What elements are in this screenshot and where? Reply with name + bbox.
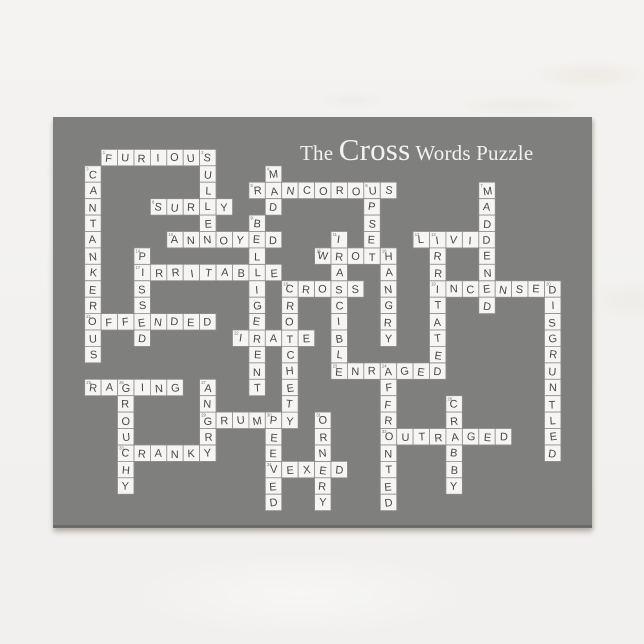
svg-text:L: L: [417, 234, 424, 247]
svg-text:D: D: [482, 301, 492, 314]
svg-text:R: R: [204, 432, 213, 444]
svg-text:D: D: [483, 219, 492, 232]
svg-text:G: G: [548, 333, 558, 346]
svg-text:E: E: [483, 432, 491, 444]
svg-text:D: D: [335, 464, 344, 477]
svg-text:E: E: [303, 333, 311, 345]
svg-text:M: M: [252, 415, 263, 428]
svg-text:D: D: [203, 316, 211, 328]
svg-text:D: D: [269, 497, 278, 510]
svg-text:B: B: [450, 465, 458, 477]
svg-text:R: R: [253, 333, 262, 346]
svg-text:E: E: [204, 218, 212, 230]
svg-text:S: S: [89, 349, 97, 362]
svg-text:O: O: [385, 431, 395, 443]
svg-text:G: G: [170, 382, 180, 395]
svg-text:R: R: [384, 415, 393, 428]
svg-text:E: E: [269, 448, 277, 460]
svg-text:F: F: [121, 316, 129, 329]
svg-text:O: O: [285, 316, 295, 328]
svg-text:O: O: [352, 186, 362, 199]
svg-text:C: C: [303, 185, 312, 198]
svg-text:T: T: [435, 300, 442, 312]
svg-text:U: U: [89, 333, 98, 345]
svg-text:C: C: [121, 447, 131, 460]
svg-text:Y: Y: [121, 481, 130, 493]
svg-text:N: N: [153, 316, 162, 329]
svg-text:N: N: [203, 398, 212, 410]
svg-text:R: R: [220, 415, 229, 427]
svg-text:I: I: [141, 267, 144, 279]
svg-text:D: D: [548, 284, 556, 296]
svg-text:R: R: [171, 267, 180, 280]
svg-text:E: E: [549, 431, 558, 444]
svg-text:N: N: [187, 235, 196, 247]
svg-text:R: R: [137, 448, 146, 461]
svg-text:T: T: [90, 218, 97, 230]
svg-text:C: C: [335, 300, 344, 312]
svg-text:N: N: [351, 366, 359, 378]
svg-text:C: C: [88, 169, 97, 182]
svg-text:R: R: [286, 300, 295, 313]
svg-text:R: R: [433, 250, 442, 263]
svg-text:S: S: [351, 284, 359, 296]
svg-text:R: R: [450, 416, 459, 429]
svg-text:U: U: [186, 153, 195, 166]
svg-text:C: C: [285, 283, 295, 296]
svg-text:R: R: [335, 251, 344, 264]
svg-text:T: T: [287, 334, 294, 346]
svg-text:L: L: [255, 267, 261, 279]
svg-text:R: R: [319, 432, 328, 445]
svg-text:P: P: [269, 415, 278, 428]
svg-text:U: U: [122, 431, 131, 444]
svg-text:E: E: [270, 268, 278, 280]
svg-text:R: R: [137, 153, 145, 165]
svg-text:O: O: [319, 186, 328, 198]
svg-text:S: S: [138, 300, 146, 313]
svg-text:O: O: [318, 414, 327, 426]
svg-text:Y: Y: [319, 497, 328, 509]
svg-text:D: D: [500, 431, 508, 443]
svg-text:R: R: [549, 349, 558, 362]
svg-text:Y: Y: [385, 333, 393, 345]
svg-text:E: E: [88, 284, 96, 297]
svg-text:T: T: [254, 382, 262, 394]
svg-text:R: R: [155, 268, 164, 280]
svg-text:S: S: [368, 218, 376, 231]
svg-text:R: R: [434, 268, 443, 281]
svg-text:T: T: [369, 252, 376, 264]
svg-text:17: 17: [136, 265, 141, 270]
svg-text:K: K: [187, 448, 196, 460]
svg-text:O: O: [351, 251, 361, 263]
svg-text:E: E: [252, 234, 260, 246]
svg-text:N: N: [384, 284, 394, 297]
svg-text:C: C: [466, 284, 475, 297]
svg-text:R: R: [368, 365, 376, 377]
svg-text:V: V: [270, 464, 278, 476]
svg-text:N: N: [483, 268, 492, 281]
svg-text:U: U: [368, 185, 377, 198]
svg-text:U: U: [121, 152, 130, 165]
svg-text:D: D: [433, 366, 442, 379]
svg-text:M: M: [268, 168, 278, 181]
svg-text:N: N: [253, 367, 261, 379]
svg-text:M: M: [482, 185, 493, 198]
svg-text:O: O: [318, 283, 328, 295]
svg-text:N: N: [549, 382, 557, 394]
svg-text:E: E: [335, 367, 343, 379]
svg-text:E: E: [482, 283, 491, 296]
svg-text:R: R: [302, 284, 311, 297]
svg-text:T: T: [385, 464, 393, 476]
svg-text:N: N: [88, 203, 96, 215]
svg-text:R: R: [318, 481, 327, 494]
svg-text:G: G: [253, 300, 263, 313]
svg-text:L: L: [254, 251, 260, 263]
svg-text:N: N: [203, 234, 212, 247]
svg-text:O: O: [88, 316, 97, 328]
svg-text:N: N: [450, 283, 458, 295]
svg-text:B: B: [449, 447, 458, 460]
svg-text:E: E: [286, 465, 294, 477]
svg-text:D: D: [269, 235, 277, 247]
svg-text:I: I: [156, 153, 159, 165]
svg-text:E: E: [532, 283, 540, 295]
svg-text:D: D: [137, 333, 146, 346]
svg-text:O: O: [170, 152, 180, 165]
svg-text:N: N: [286, 185, 295, 198]
svg-text:D: D: [170, 316, 179, 329]
svg-text:R: R: [187, 202, 196, 214]
svg-text:D: D: [548, 448, 558, 461]
svg-text:T: T: [549, 400, 556, 412]
svg-text:U: U: [402, 432, 410, 444]
svg-text:U: U: [236, 414, 245, 427]
svg-text:N: N: [318, 447, 327, 460]
svg-text:I: I: [436, 284, 439, 296]
svg-text:R: R: [253, 185, 262, 198]
svg-text:A: A: [270, 333, 279, 345]
svg-text:C: C: [449, 398, 458, 410]
svg-text:H: H: [384, 251, 393, 263]
svg-text:R: R: [121, 399, 129, 411]
svg-text:B: B: [237, 268, 245, 280]
svg-text:N: N: [171, 449, 179, 461]
svg-text:G: G: [122, 383, 131, 395]
svg-text:A: A: [171, 234, 179, 246]
svg-text:L: L: [205, 201, 211, 213]
svg-text:G: G: [384, 300, 394, 313]
svg-text:A: A: [154, 448, 163, 460]
svg-text:R: R: [383, 317, 392, 330]
svg-text:E: E: [270, 432, 278, 444]
svg-text:P: P: [138, 251, 146, 263]
svg-text:S: S: [548, 317, 556, 330]
svg-text:H: H: [285, 365, 294, 378]
svg-text:R: R: [89, 300, 98, 312]
svg-text:D: D: [268, 201, 277, 214]
svg-text:I: I: [141, 382, 144, 394]
svg-text:N: N: [155, 383, 164, 396]
svg-text:S: S: [138, 284, 146, 296]
svg-text:R: R: [336, 185, 344, 197]
svg-text:D: D: [384, 497, 394, 510]
svg-text:R: R: [434, 432, 443, 445]
svg-text:C: C: [286, 350, 295, 362]
svg-text:Y: Y: [220, 202, 229, 214]
svg-text:N: N: [88, 251, 97, 264]
svg-text:S: S: [515, 284, 523, 297]
svg-text:L: L: [549, 415, 556, 427]
svg-text:R: R: [88, 382, 97, 395]
svg-text:E: E: [269, 481, 277, 493]
svg-text:E: E: [483, 250, 491, 262]
svg-text:U: U: [548, 366, 557, 379]
svg-text:T: T: [418, 431, 426, 443]
svg-text:F: F: [105, 317, 113, 329]
svg-text:S: S: [335, 285, 342, 297]
svg-text:Y: Y: [450, 481, 458, 493]
svg-text:U: U: [170, 202, 179, 215]
svg-text:N: N: [498, 284, 508, 297]
svg-text:H: H: [121, 465, 130, 478]
svg-text:E: E: [187, 317, 195, 329]
svg-text:E: E: [384, 481, 392, 494]
svg-text:E: E: [254, 349, 262, 361]
svg-text:G: G: [400, 365, 410, 378]
svg-text:O: O: [121, 416, 131, 429]
svg-text:G: G: [204, 416, 213, 428]
svg-text:G: G: [466, 431, 476, 444]
svg-text:E: E: [367, 234, 375, 246]
svg-text:A: A: [336, 267, 345, 279]
svg-text:I: I: [551, 300, 555, 312]
svg-text:L: L: [205, 185, 212, 197]
svg-text:N: N: [384, 449, 392, 461]
svg-text:U: U: [203, 169, 212, 182]
svg-text:D: D: [482, 235, 490, 247]
svg-text:B: B: [253, 218, 262, 231]
